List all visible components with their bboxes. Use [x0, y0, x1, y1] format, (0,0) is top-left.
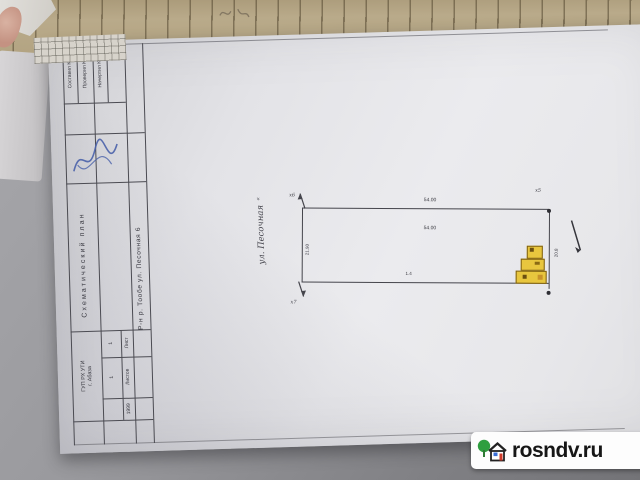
plan-sheet: Составил К. Проверил К. Начертил К. Схем…: [48, 24, 640, 454]
stamp-row-label: Проверил К.: [81, 58, 88, 90]
building-detail-mark: [530, 248, 534, 252]
stamp-line: [62, 46, 75, 446]
north-arrow-icon: [565, 216, 590, 263]
corner-mark-bottom: х7: [286, 300, 301, 305]
dimension-top: 54.00: [420, 198, 440, 203]
house-tree-logo-icon: [476, 436, 508, 466]
survey-point-dot: [547, 291, 551, 295]
street-quote-mark: «: [256, 195, 262, 202]
underlying-paper-edge: [0, 50, 50, 181]
pencil-scribble: [216, 1, 256, 28]
plot-boundary-right: [549, 211, 550, 289]
plot-boundary-top: [302, 208, 549, 210]
sheet-cell-label: Лист: [124, 333, 131, 353]
survey-point-dot: [547, 209, 551, 213]
photo-of-site-plan-document: Составил К. Проверил К. Начертил К. Схем…: [0, 0, 640, 480]
dimension-bottom: 1.4: [402, 272, 416, 277]
site-watermark: rosndv.ru: [471, 432, 640, 469]
stamp-line: [66, 181, 146, 184]
signature-scribble: [67, 134, 122, 182]
corner-mark-right: х5: [531, 188, 546, 193]
building-detail-mark: [523, 275, 527, 279]
graph-paper-scrap: [33, 34, 126, 64]
stamp-row-label: Начертил К.: [96, 57, 103, 89]
corner-mark-top: х6: [285, 193, 300, 198]
plot-boundary-left: [302, 208, 303, 283]
organization-line2: г. Абаза: [87, 366, 93, 386]
stamp-row-label: Составил К.: [66, 58, 73, 90]
stamp-line: [142, 43, 155, 443]
plot-boundary-bottom: [302, 282, 549, 284]
dimension-middle: 54.00: [420, 226, 440, 231]
street-name-handwriting: ул. Песочная: [254, 203, 269, 266]
organization-line1: ГУП РХ УТИ: [80, 360, 86, 392]
address-label: Р-н р. Тообе ул. Песочная 6: [134, 232, 146, 325]
document-type-label: Схематический план: [77, 223, 91, 307]
sheets-cell-value: 1: [109, 372, 115, 382]
sheets-cell-label: Листов: [125, 367, 132, 387]
stamp-line: [92, 45, 105, 445]
dimension-left: 21.90: [306, 241, 311, 259]
building-detail-mark: [535, 262, 540, 265]
dimension-right: 20.8: [554, 244, 559, 262]
stamp-line: [73, 419, 153, 422]
stamp-number: 1999: [126, 399, 133, 419]
building-block-middle: [521, 259, 545, 271]
building-detail-mark: [538, 275, 543, 280]
organization-label: ГУП РХ УТИ г. Абаза: [80, 349, 94, 402]
watermark-site-name: rosndv.ru: [512, 439, 603, 463]
stamp-line: [101, 356, 151, 358]
sheet-cell-value: 1: [108, 338, 114, 348]
plot-drawing: 54.00 54.00 1.4 21.90 20.8 х6 х7 х5: [302, 208, 552, 289]
